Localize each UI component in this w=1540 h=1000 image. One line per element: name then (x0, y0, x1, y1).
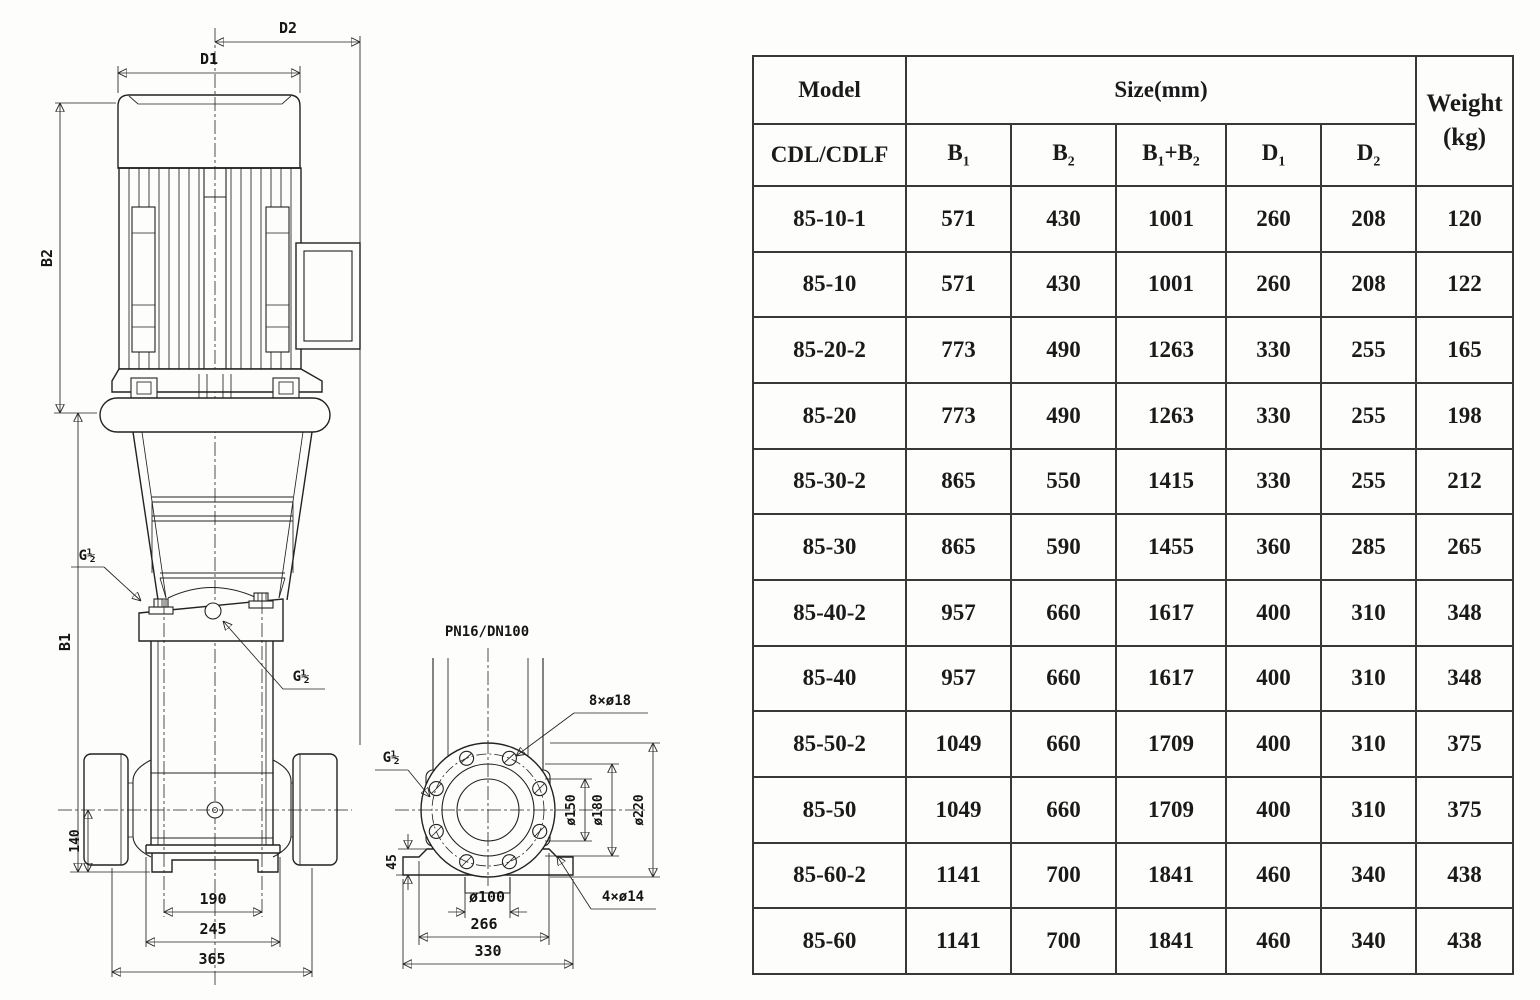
b1-cell: 1141 (906, 908, 1011, 974)
b1b2-cell: 1455 (1116, 514, 1226, 580)
b1b2-cell: 1709 (1116, 777, 1226, 843)
bolt-holes-label: 8×ø18 (589, 693, 631, 709)
motor-flange (112, 369, 322, 398)
model-cell: 85-50-2 (753, 711, 906, 777)
d2-cell: 255 (1321, 449, 1416, 515)
dim-label-d1: D1 (200, 50, 218, 68)
port-callout-left: G½ (71, 548, 141, 601)
model-cell: 85-20 (753, 383, 906, 449)
dim-label-phi100: ø100 (469, 888, 505, 906)
dim-label-d2: D2 (279, 19, 297, 37)
model-cell: 85-40 (753, 646, 906, 712)
d2-cell: 208 (1321, 186, 1416, 252)
header-size: Size(mm) (906, 56, 1416, 124)
b2-cell: 590 (1011, 514, 1116, 580)
header-weight: Weight (kg) (1416, 56, 1513, 186)
flange-view: PN16/DN100 (375, 624, 660, 969)
table-row: 85-20-27734901263330255165 (753, 317, 1513, 383)
vent-plug (205, 603, 221, 619)
model-cell: 85-60 (753, 908, 906, 974)
b1b2-cell: 1263 (1116, 383, 1226, 449)
dim-label-330: 330 (474, 942, 501, 960)
b2-cell: 490 (1011, 317, 1116, 383)
b1b2-cell: 1841 (1116, 843, 1226, 909)
weight-cell: 265 (1416, 514, 1513, 580)
weight-cell: 348 (1416, 646, 1513, 712)
d1-cell: 260 (1226, 252, 1321, 318)
weight-cell: 375 (1416, 777, 1513, 843)
d2-cell: 340 (1321, 908, 1416, 974)
table-row: 85-10-15714301001260208120 (753, 186, 1513, 252)
pump-base (146, 845, 280, 872)
b1b2-cell: 1001 (1116, 252, 1226, 318)
dim-phi100: ø100 (448, 880, 527, 918)
b2-cell: 660 (1011, 711, 1116, 777)
table-row: 85-308655901455360285265 (753, 514, 1513, 580)
d1-cell: 400 (1226, 646, 1321, 712)
b1-cell: 1049 (906, 711, 1011, 777)
d1-cell: 260 (1226, 186, 1321, 252)
header-d1: D1 (1226, 124, 1321, 186)
b2-cell: 700 (1011, 908, 1116, 974)
table-row: 85-30-28655501415330255212 (753, 449, 1513, 515)
dimension-table: Model Size(mm) Weight (kg) CDL/CDLF B1 B… (752, 55, 1514, 975)
table-header-row: Model Size(mm) Weight (kg) (753, 56, 1513, 124)
header-b1b2: B1+B2 (1116, 124, 1226, 186)
motor-side-strips (132, 207, 289, 352)
header-d2: D2 (1321, 124, 1416, 186)
table-row: 85-105714301001260208122 (753, 252, 1513, 318)
b1b2-cell: 1617 (1116, 646, 1226, 712)
header-model: Model (753, 56, 906, 124)
model-cell: 85-50 (753, 777, 906, 843)
b1-cell: 1141 (906, 843, 1011, 909)
b2-cell: 660 (1011, 646, 1116, 712)
weight-cell: 120 (1416, 186, 1513, 252)
dim-label-phi220: ø220 (632, 794, 647, 825)
pump-barrel (151, 600, 273, 917)
model-cell: 85-10 (753, 252, 906, 318)
dim-label-365: 365 (198, 950, 225, 968)
d2-cell: 208 (1321, 252, 1416, 318)
dim-label-140: 140 (68, 829, 83, 853)
flange-port-callout: G½ (375, 750, 430, 797)
weight-cell: 348 (1416, 580, 1513, 646)
table-row: 85-40-29576601617400310348 (753, 580, 1513, 646)
pump-dimension-drawing: D2 D1 B2 B1 140 (0, 0, 740, 1000)
d2-cell: 310 (1321, 711, 1416, 777)
header-b2: B2 (1011, 124, 1116, 186)
d1-cell: 330 (1226, 383, 1321, 449)
port-flanges (58, 754, 352, 865)
dim-label-phi150: ø150 (564, 794, 579, 825)
b1-cell: 773 (906, 317, 1011, 383)
pump-datasheet-page: D2 D1 B2 B1 140 (0, 0, 1540, 1000)
header-weight-unit: (kg) (1417, 121, 1512, 155)
b2-cell: 430 (1011, 186, 1116, 252)
d1-cell: 400 (1226, 580, 1321, 646)
b1-cell: 773 (906, 383, 1011, 449)
model-cell: 85-30-2 (753, 449, 906, 515)
b2-cell: 430 (1011, 252, 1116, 318)
b2-cell: 550 (1011, 449, 1116, 515)
header-series: CDL/CDLF (753, 124, 906, 186)
b1b2-cell: 1415 (1116, 449, 1226, 515)
b1-cell: 865 (906, 449, 1011, 515)
dim-b2: B2 (38, 103, 116, 413)
flange-spec-label: PN16/DN100 (445, 624, 529, 640)
terminal-box (296, 243, 360, 349)
model-cell: 85-60-2 (753, 843, 906, 909)
motor-stool (133, 432, 312, 600)
b1b2-cell: 1617 (1116, 580, 1226, 646)
mounting-plate (100, 398, 330, 432)
dim-label-245: 245 (199, 920, 226, 938)
base-holes-label: 4×ø14 (602, 889, 644, 905)
flange-port-label: G½ (383, 750, 400, 766)
dim-label-266: 266 (470, 915, 497, 933)
d1-cell: 330 (1226, 449, 1321, 515)
base-holes-callout: 4×ø14 (557, 856, 656, 909)
d2-cell: 255 (1321, 383, 1416, 449)
b1-cell: 1049 (906, 777, 1011, 843)
b2-cell: 700 (1011, 843, 1116, 909)
weight-cell: 375 (1416, 711, 1513, 777)
b2-cell: 660 (1011, 777, 1116, 843)
dim-d1: D1 (118, 50, 300, 93)
d2-cell: 310 (1321, 646, 1416, 712)
b1b2-cell: 1263 (1116, 317, 1226, 383)
bolt-holes-callout: 8×ø18 (516, 693, 648, 756)
b1-cell: 571 (906, 186, 1011, 252)
table-row: 85-6011417001841460340438 (753, 908, 1513, 974)
d1-cell: 460 (1226, 843, 1321, 909)
front-view: D2 D1 B2 B1 140 (38, 19, 360, 985)
d2-cell: 285 (1321, 514, 1416, 580)
dim-label-b2: B2 (38, 249, 56, 267)
weight-cell: 438 (1416, 908, 1513, 974)
weight-cell: 438 (1416, 843, 1513, 909)
table-row: 85-409576601617400310348 (753, 646, 1513, 712)
weight-cell: 198 (1416, 383, 1513, 449)
d1-cell: 460 (1226, 908, 1321, 974)
table-subheader-row: CDL/CDLF B1 B2 B1+B2 D1 D2 (753, 124, 1513, 186)
b1b2-cell: 1841 (1116, 908, 1226, 974)
d2-cell: 310 (1321, 777, 1416, 843)
dim-45: 45 (385, 834, 432, 890)
weight-cell: 165 (1416, 317, 1513, 383)
b2-cell: 660 (1011, 580, 1116, 646)
header-b1: B1 (906, 124, 1011, 186)
port-label-g-half-right: G½ (293, 669, 310, 685)
motor-top-cap (118, 95, 300, 168)
model-cell: 85-40-2 (753, 580, 906, 646)
d1-cell: 400 (1226, 711, 1321, 777)
b1b2-cell: 1709 (1116, 711, 1226, 777)
b2-cell: 490 (1011, 383, 1116, 449)
b1-cell: 865 (906, 514, 1011, 580)
b1b2-cell: 1001 (1116, 186, 1226, 252)
pump-head (139, 593, 283, 641)
dim-label-190: 190 (199, 890, 226, 908)
dim-190: 190 (164, 890, 262, 912)
d1-cell: 400 (1226, 777, 1321, 843)
weight-cell: 212 (1416, 449, 1513, 515)
b1-cell: 957 (906, 580, 1011, 646)
dim-label-45: 45 (385, 854, 400, 870)
header-weight-label: Weight (1417, 87, 1512, 121)
model-cell: 85-10-1 (753, 186, 906, 252)
dim-label-b1: B1 (56, 633, 74, 651)
table-row: 85-50-210496601709400310375 (753, 711, 1513, 777)
d1-cell: 360 (1226, 514, 1321, 580)
dim-label-phi180: ø180 (591, 794, 606, 825)
d2-cell: 255 (1321, 317, 1416, 383)
d2-cell: 340 (1321, 843, 1416, 909)
model-cell: 85-20-2 (753, 317, 906, 383)
b1-cell: 571 (906, 252, 1011, 318)
port-label-g-half-left: G½ (79, 548, 96, 564)
b1-cell: 957 (906, 646, 1011, 712)
table-row: 85-5010496601709400310375 (753, 777, 1513, 843)
model-cell: 85-30 (753, 514, 906, 580)
table-row: 85-207734901263330255198 (753, 383, 1513, 449)
d1-cell: 330 (1226, 317, 1321, 383)
weight-cell: 122 (1416, 252, 1513, 318)
d2-cell: 310 (1321, 580, 1416, 646)
table-row: 85-60-211417001841460340438 (753, 843, 1513, 909)
